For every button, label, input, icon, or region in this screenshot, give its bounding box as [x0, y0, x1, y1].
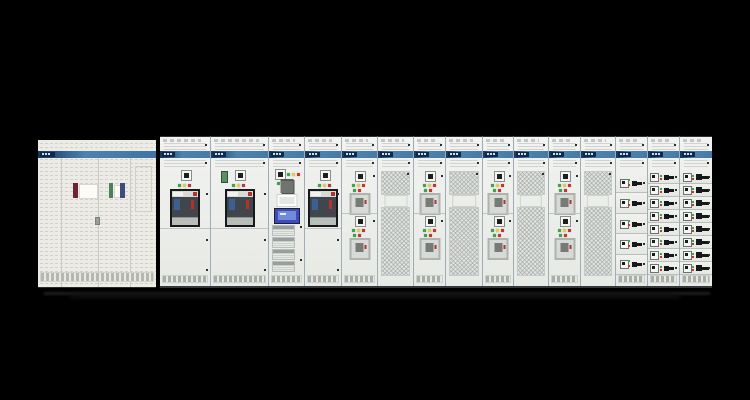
- breaker-mid: [310, 197, 336, 217]
- bottom-vent-grille: [485, 275, 511, 283]
- mesh-door-lower: [584, 207, 612, 276]
- terminal-block: [272, 249, 295, 260]
- door-label-red-stripe: [73, 183, 78, 198]
- vent-panel-lower: [269, 158, 304, 169]
- brand-logo-chip: [271, 152, 284, 157]
- drawer-led-red: [692, 243, 694, 245]
- drawer-led-green: [628, 179, 630, 181]
- meter-screen: [428, 174, 433, 179]
- led-green: [353, 234, 356, 237]
- panel-knob: [610, 144, 612, 146]
- mccb-switch-box: [488, 193, 509, 215]
- brand-band: [680, 151, 712, 158]
- panel-knob: [440, 144, 442, 146]
- drawer-stack: [616, 173, 647, 275]
- door-seam: [130, 158, 131, 287]
- vent-slot: [273, 163, 300, 164]
- terminal-block: [272, 225, 295, 236]
- drawer-led-green: [692, 175, 694, 177]
- drawer-led-green: [692, 266, 694, 268]
- led-indicator-row: [352, 228, 367, 232]
- section-body: [549, 169, 580, 286]
- vent-slot: [215, 149, 264, 150]
- led-green: [287, 173, 290, 176]
- vent-slot: [309, 160, 337, 161]
- equipment-tag-label: [552, 139, 571, 142]
- drawer-plug-handle: [634, 182, 642, 185]
- vent-slot: [164, 146, 206, 147]
- equipment-tag-label: [449, 139, 473, 142]
- drawer-unit: [680, 223, 712, 236]
- vent-slot: [553, 146, 576, 147]
- panel-knob: [408, 162, 410, 164]
- section-2-acb: [210, 136, 268, 286]
- led-red: [188, 184, 191, 187]
- drawer-led-green: [692, 227, 694, 229]
- vent-slot: [652, 163, 675, 164]
- acb-breaker-window: [225, 189, 255, 227]
- vent-panel-lower: [211, 158, 268, 169]
- section-body: [616, 169, 647, 286]
- drawer-unit: [680, 236, 712, 249]
- brand-logo-chip: [485, 152, 498, 157]
- led-yellow: [496, 184, 499, 187]
- led-red: [433, 229, 436, 232]
- breaker-base: [227, 217, 253, 225]
- vent-slot: [450, 143, 478, 144]
- vent-panel-upper: [514, 137, 548, 152]
- drawer-led-red: [628, 224, 630, 226]
- panel-knob: [508, 162, 510, 164]
- mesh-door-upper: [381, 171, 410, 195]
- drawer-latch: [643, 223, 645, 225]
- panel-knob: [575, 162, 577, 164]
- vent-slot: [585, 163, 611, 164]
- led-red: [429, 189, 432, 192]
- led-green: [424, 234, 427, 237]
- breaker-aux-block: [174, 199, 180, 210]
- led-indicator-row: [287, 172, 302, 176]
- vent-panel-lower: [414, 158, 445, 169]
- vent-slot: [487, 146, 509, 147]
- vent-panel-lower: [342, 158, 377, 169]
- vent-slot: [309, 143, 337, 144]
- section-14-drawers: [647, 136, 679, 286]
- mccb-handle-slot: [426, 198, 434, 207]
- terminal-block: [272, 261, 295, 272]
- led-red: [498, 189, 501, 192]
- led-red: [433, 184, 436, 187]
- meter-screen: [184, 173, 189, 178]
- tier-divider: [549, 213, 580, 214]
- drawer-led-red: [692, 230, 694, 232]
- drawer-led-red: [660, 243, 662, 245]
- breaker-nameplate: [228, 192, 238, 196]
- vent-slot: [553, 166, 576, 167]
- led-yellow: [428, 229, 431, 232]
- drawer-latch: [708, 202, 710, 204]
- vent-slot: [382, 146, 409, 147]
- drawer-indicator-device: [650, 225, 659, 234]
- drawer-led-green: [692, 201, 694, 203]
- vent-panel-upper: [414, 137, 445, 152]
- drawer-plug-handle: [666, 267, 674, 270]
- led-green: [424, 189, 427, 192]
- vent-slot: [309, 146, 337, 147]
- panel-knob: [642, 162, 644, 164]
- drawer-unit: [616, 234, 647, 254]
- vent-panel-lower: [160, 158, 210, 169]
- vent-slot: [652, 166, 675, 167]
- drawer-indicator-device: [683, 212, 692, 221]
- vent-panel-lower: [483, 158, 513, 169]
- section-body: [342, 169, 377, 286]
- led-green: [493, 189, 496, 192]
- drawer-latch: [675, 254, 677, 256]
- drawer-led-red: [692, 191, 694, 193]
- drawer-led-green: [660, 175, 662, 177]
- meter-screen: [563, 219, 568, 224]
- door-knob: [509, 175, 511, 177]
- vent-slot: [346, 160, 373, 161]
- door-handle: [95, 217, 100, 225]
- vent-panel-upper: [549, 137, 580, 152]
- meter-screen: [238, 173, 243, 178]
- panel-knob: [263, 162, 265, 164]
- switchboard-product-photo: [0, 0, 750, 400]
- vent-panel-upper: [211, 137, 268, 152]
- led-indicator-row: [493, 233, 503, 237]
- drawer-stack: [680, 171, 712, 275]
- vent-panel-upper: [160, 137, 210, 152]
- vent-slot: [684, 160, 708, 161]
- section-10-mesh: [513, 136, 548, 286]
- panel-knob: [610, 162, 612, 164]
- meter-screen: [563, 174, 568, 179]
- drawer-unit: [648, 171, 679, 184]
- section-body: [414, 169, 445, 286]
- section-15-drawers: [679, 136, 712, 286]
- section-13-drawers: [615, 136, 647, 286]
- vent-slot: [620, 146, 643, 147]
- vent-slot: [450, 160, 478, 161]
- drawer-unit: [680, 197, 712, 210]
- door-knob: [509, 220, 511, 222]
- mccb-handle-slot: [356, 198, 364, 207]
- drawer-latch: [708, 241, 710, 243]
- led-indicator-row: [353, 188, 363, 192]
- mccb-switch-box: [554, 238, 575, 260]
- equipment-tag-label: [381, 139, 404, 142]
- panel-knob: [299, 162, 301, 164]
- brand-band: [483, 151, 513, 158]
- left-perforated-cabinet: [38, 140, 156, 287]
- led-red: [564, 189, 567, 192]
- led-green: [352, 229, 355, 232]
- brand-logo-chip: [380, 152, 393, 157]
- panel-knob: [336, 144, 338, 146]
- section-1-acb: [160, 136, 210, 286]
- vent-slot: [273, 143, 300, 144]
- drawer-latch: [708, 228, 710, 230]
- bottom-vent-grille: [271, 275, 302, 283]
- vent-slot: [620, 166, 643, 167]
- door-seam: [305, 228, 341, 229]
- vent-slot: [652, 160, 675, 161]
- door-seam: [61, 158, 62, 287]
- mccb-handle-slot: [494, 243, 502, 252]
- vent-panel-lower: [680, 158, 712, 169]
- drawer-unit: [648, 236, 679, 249]
- breaker-base: [172, 217, 198, 225]
- acb-breaker-window: [170, 189, 200, 227]
- mesh-door-upper: [517, 171, 545, 195]
- vent-slot: [418, 146, 441, 147]
- switchboard-lineup: [160, 136, 712, 288]
- breaker-nameplate: [311, 192, 321, 196]
- led-red: [358, 189, 361, 192]
- led-red: [568, 229, 571, 232]
- door-knob: [300, 259, 302, 261]
- breaker-trip-badge: [248, 192, 252, 196]
- vent-panel-upper: [342, 137, 377, 152]
- brand-band: [581, 151, 615, 158]
- led-red: [328, 184, 331, 187]
- vent-panel-lower: [514, 158, 548, 169]
- panel-knob: [440, 162, 442, 164]
- meter-display: [235, 170, 246, 181]
- meter-display: [355, 171, 366, 182]
- vent-panel-upper: [269, 137, 304, 152]
- panel-knob: [707, 162, 709, 164]
- door-knob: [264, 193, 266, 195]
- mesh-door-lower: [381, 207, 410, 276]
- vent-slot: [215, 146, 264, 147]
- equipment-tag-label: [308, 139, 332, 142]
- drawer-led-green: [628, 260, 630, 262]
- vent-slot: [215, 143, 264, 144]
- led-indicator-row: [178, 183, 193, 187]
- acb-breaker-window: [308, 189, 338, 227]
- drawer-plug-handle: [666, 189, 674, 192]
- hmi-touchscreen: [274, 208, 300, 224]
- panel-knob: [205, 144, 207, 146]
- drawer-led-green: [692, 253, 694, 255]
- mccb-handle-slot: [426, 243, 434, 252]
- door-knob: [300, 226, 302, 228]
- mesh-door-nameplate: [520, 195, 542, 207]
- drawer-unit: [648, 210, 679, 223]
- led-green: [491, 229, 494, 232]
- drawer-plug-handle: [666, 202, 674, 205]
- brand-logo-chip: [551, 152, 564, 157]
- brand-logo-chip: [618, 152, 631, 157]
- section-body: [211, 169, 268, 286]
- meter-screen: [323, 173, 328, 178]
- vent-panel-lower: [616, 158, 647, 169]
- led-green: [423, 184, 426, 187]
- section-6-mesh: [377, 136, 413, 286]
- panel-knob: [575, 144, 577, 146]
- section-body: [581, 169, 615, 286]
- vent-slot: [487, 149, 509, 150]
- bottom-vent-grille: [551, 275, 578, 283]
- mesh-door-upper: [449, 171, 479, 195]
- equipment-tag-label: [486, 139, 504, 142]
- led-red: [501, 229, 504, 232]
- bottom-vent-grille: [307, 275, 339, 283]
- brand-band: [211, 151, 268, 158]
- door-knob: [206, 239, 208, 241]
- vent-slot: [684, 166, 708, 167]
- drawer-indicator-device: [650, 251, 659, 260]
- drawer-unit: [648, 184, 679, 197]
- panel-knob: [205, 162, 207, 164]
- panel-knob: [543, 162, 545, 164]
- breaker-aux-block: [312, 199, 318, 210]
- section-9-mcc2: [482, 136, 513, 286]
- led-red: [429, 234, 432, 237]
- vent-slot: [450, 149, 478, 150]
- vent-slot: [382, 149, 409, 150]
- led-indicator-row: [318, 183, 333, 187]
- drawer-plug-handle: [666, 254, 674, 257]
- vent-slot: [382, 166, 409, 167]
- brand-logo-chip: [40, 152, 55, 157]
- led-red: [501, 184, 504, 187]
- breaker-nameplate: [173, 192, 183, 196]
- vent-slot: [652, 146, 675, 147]
- door-knob: [337, 193, 339, 195]
- vent-panel-lower: [446, 158, 482, 169]
- vent-slot: [684, 146, 708, 147]
- section-body: [446, 169, 482, 286]
- vent-slot: [652, 143, 675, 144]
- acb-breaker-face: [310, 191, 336, 225]
- drawer-indicator-device: [650, 186, 659, 195]
- vent-slot: [553, 149, 576, 150]
- door-knob: [441, 220, 443, 222]
- brand-logo-chip: [516, 152, 529, 157]
- bottom-vent-grille: [213, 275, 266, 283]
- equipment-tag-label: [272, 139, 295, 142]
- bottom-vent-band: [40, 272, 154, 282]
- vent-slot: [487, 163, 509, 164]
- drawer-led-green: [660, 188, 662, 190]
- vent-slot: [418, 160, 441, 161]
- drawer-plug-handle: [634, 263, 642, 266]
- equipment-tag-label: [651, 139, 670, 142]
- vent-slot: [164, 163, 206, 164]
- acb-breaker-face: [227, 191, 253, 225]
- bottom-vent-grille: [650, 275, 677, 283]
- section-body: [680, 169, 712, 286]
- brand-logo-chip: [344, 152, 357, 157]
- led-green: [493, 234, 496, 237]
- vent-slot: [273, 149, 300, 150]
- led-indicator-row: [232, 183, 247, 187]
- vent-slot: [309, 163, 337, 164]
- drawer-plug-handle: [634, 202, 642, 205]
- relay-module: [280, 179, 293, 193]
- drawer-indicator-device: [683, 238, 692, 247]
- door-knob: [441, 175, 443, 177]
- drawer-latch: [675, 215, 677, 217]
- mccb-handle-slot: [494, 198, 502, 207]
- led-green: [559, 189, 562, 192]
- vent-panel-upper: [446, 137, 482, 152]
- vent-slot: [164, 143, 206, 144]
- panel-knob: [372, 162, 374, 164]
- mccb-switch-box: [488, 238, 509, 260]
- vent-slot: [450, 166, 478, 167]
- vent-panel-upper: [616, 137, 647, 152]
- drawer-led-green: [692, 240, 694, 242]
- drawer-latch: [643, 263, 645, 265]
- hmi-screen: [275, 209, 299, 223]
- drawer-led-red: [628, 245, 630, 247]
- breaker-mid: [172, 197, 198, 217]
- drawer-indicator-device: [683, 225, 692, 234]
- panel-knob: [642, 144, 644, 146]
- drawer-unit: [680, 171, 712, 184]
- acb-breaker-face: [172, 191, 198, 225]
- led-indicator-row: [424, 188, 434, 192]
- drawer-unit: [680, 184, 712, 197]
- meter-display: [320, 170, 331, 181]
- led-green: [232, 184, 235, 187]
- section-body: [305, 169, 341, 286]
- panel-knob: [407, 173, 409, 175]
- narrow-door-frame: [135, 166, 152, 212]
- drawer-latch: [708, 267, 710, 269]
- drawer-unit: [648, 223, 679, 236]
- mccb-switch-box: [349, 238, 370, 260]
- meter-screen: [497, 219, 502, 224]
- brand-band: [446, 151, 482, 158]
- panel-knob: [674, 144, 676, 146]
- section-body: [269, 169, 304, 286]
- vent-slot: [487, 160, 509, 161]
- equipment-tag-label: [584, 139, 606, 142]
- led-green: [559, 234, 562, 237]
- vent-slot: [346, 166, 373, 167]
- vent-panel-upper: [483, 137, 513, 152]
- section-body: [514, 169, 548, 286]
- meter-screen: [428, 219, 433, 224]
- mccb-switch-box: [554, 193, 575, 215]
- breaker-aux-block: [229, 199, 235, 210]
- drawer-latch: [675, 228, 677, 230]
- vent-slot: [620, 143, 643, 144]
- breaker-mid: [227, 197, 253, 217]
- door-knob: [576, 220, 578, 222]
- brand-logo-chip: [213, 152, 226, 157]
- panel-knob: [543, 144, 545, 146]
- door-seam: [211, 228, 268, 229]
- tier-divider: [483, 213, 513, 214]
- equipment-tag-label: [619, 139, 638, 142]
- vent-slot: [346, 149, 373, 150]
- panel-knob: [263, 144, 265, 146]
- vent-slot: [346, 146, 373, 147]
- vent-panel-upper: [305, 137, 341, 152]
- bottom-vent-grille: [618, 275, 645, 283]
- drawer-latch: [643, 182, 645, 184]
- meter-display: [560, 171, 571, 182]
- meter-display: [181, 170, 192, 181]
- breaker-base: [310, 217, 336, 225]
